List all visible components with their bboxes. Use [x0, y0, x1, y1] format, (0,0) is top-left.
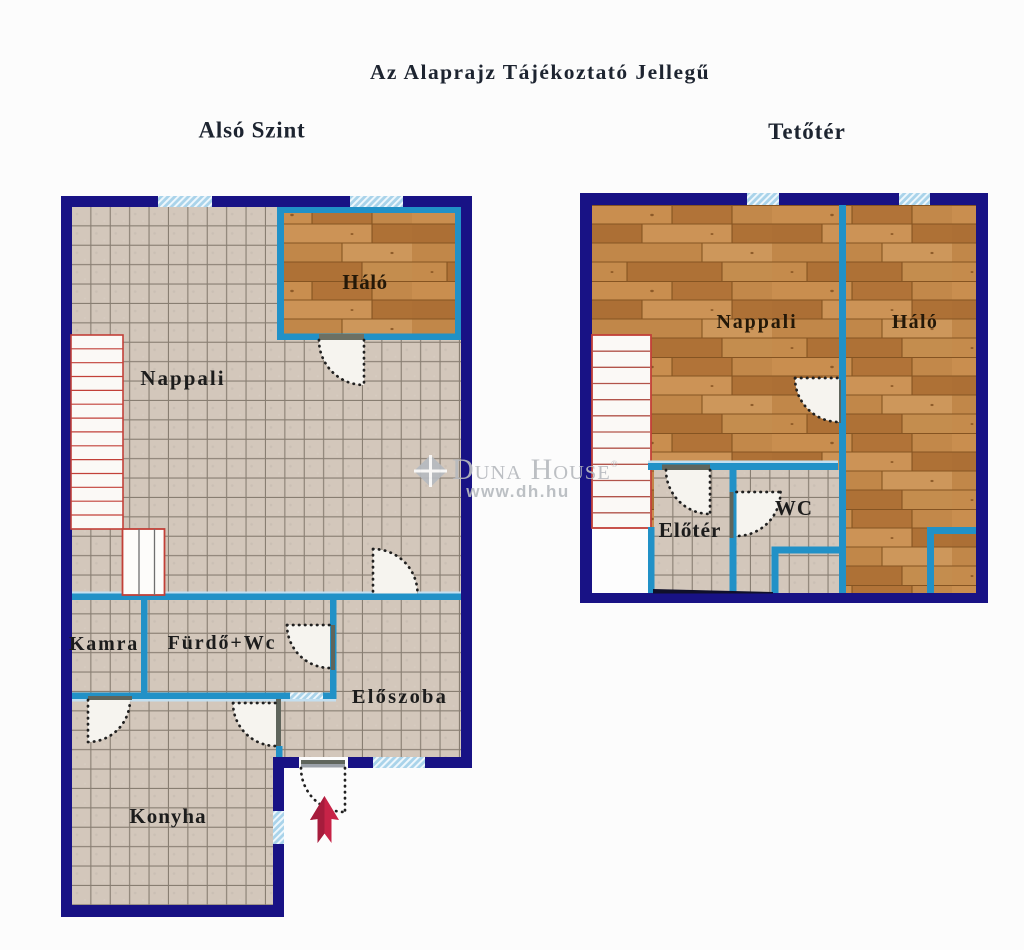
- svg-text:Nappali: Nappali: [716, 311, 797, 333]
- svg-text:Előtér: Előtér: [659, 518, 722, 542]
- svg-text:Fürdő+Wc: Fürdő+Wc: [168, 632, 277, 654]
- svg-text:Alsó Szint: Alsó Szint: [198, 118, 305, 143]
- svg-text:Háló: Háló: [342, 270, 387, 294]
- svg-text:www.dh.hu: www.dh.hu: [465, 482, 570, 501]
- svg-text:Tetőtér: Tetőtér: [768, 119, 846, 144]
- svg-text:Nappali: Nappali: [140, 366, 225, 390]
- svg-text:Konyha: Konyha: [129, 804, 206, 828]
- svg-text:WC: WC: [775, 496, 813, 520]
- svg-text:Előszoba: Előszoba: [352, 686, 448, 708]
- svg-text:Háló: Háló: [892, 311, 938, 333]
- svg-text:Kamra: Kamra: [69, 633, 139, 655]
- svg-text:Az Alaprajz Tájékoztató Jelleg: Az Alaprajz Tájékoztató Jellegű: [370, 60, 710, 84]
